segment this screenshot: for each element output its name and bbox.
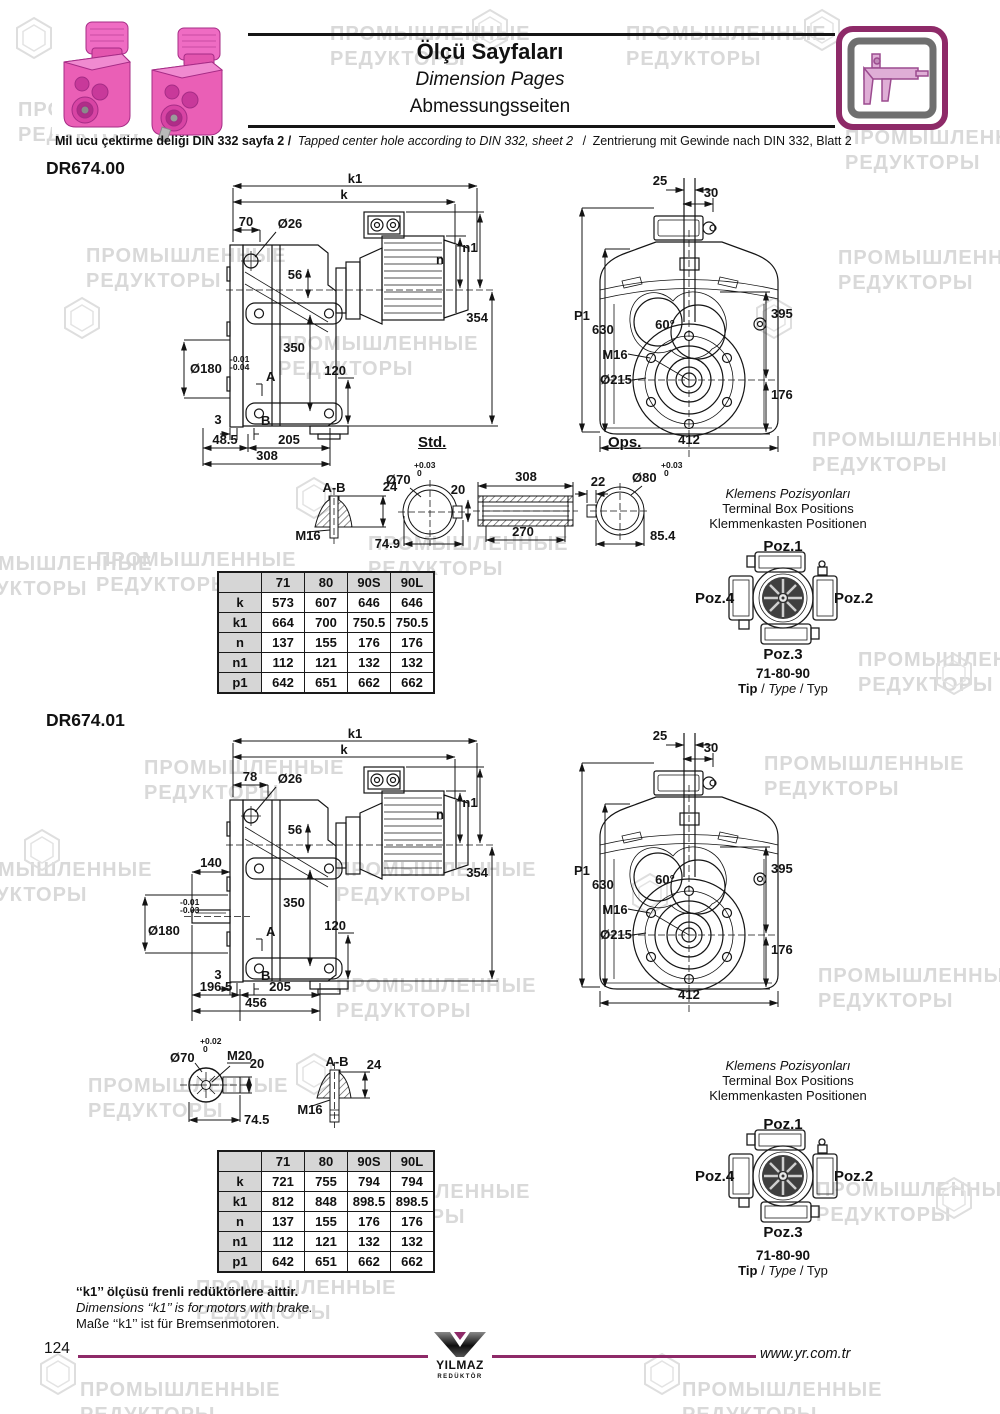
table-header-row: 718090S90L bbox=[218, 572, 434, 593]
footnote-german: Maße ‘‘k1’’ ist für Bremsenmotoren. bbox=[76, 1316, 313, 1332]
row-label: k bbox=[218, 1172, 262, 1192]
dim-label: Ø70 bbox=[170, 1050, 195, 1065]
din-note-turkish: Mil ucu çektirme deliği DIN 332 sayfa 2 … bbox=[55, 134, 291, 148]
column-header: 90L bbox=[391, 1151, 435, 1172]
watermark-text: ПРОМЫШЛЕННЫЕ РЕДУКТОРЫ bbox=[626, 22, 827, 72]
table-row: k573607646646 bbox=[218, 593, 434, 613]
column-header: 71 bbox=[262, 572, 305, 593]
value-cell: 646 bbox=[348, 593, 391, 613]
value-cell: 642 bbox=[262, 673, 305, 694]
shaft-details-dr674-00: A-B 24 M16 Ø70 +0.03 0 20 74.9 308 270 2… bbox=[290, 460, 680, 560]
value-cell: 176 bbox=[391, 1212, 435, 1232]
watermark-text: ПРОМЫШЛЕННЫЕ РЕДУКТОРЫ bbox=[845, 126, 1000, 176]
footer-rule-right bbox=[492, 1355, 756, 1358]
din-note-german: Zentrierung mit Gewinde nach DIN 332, Bl… bbox=[593, 134, 852, 148]
dim-label: M20 bbox=[227, 1048, 252, 1063]
value-cell: 176 bbox=[391, 633, 435, 653]
dim-label: 22 bbox=[591, 474, 605, 489]
table-row: n1112121132132 bbox=[218, 1232, 434, 1252]
dim-label: 24 bbox=[367, 1057, 382, 1072]
row-label: n1 bbox=[218, 1232, 262, 1252]
column-header: 90S bbox=[348, 572, 391, 593]
dim-label: 395 bbox=[771, 861, 793, 876]
dimension-table-dr674-01: 718090S90Lk721755794794k1812848898.5898.… bbox=[217, 1150, 435, 1273]
gearmotor-photo-2 bbox=[138, 24, 248, 142]
dim-label: n bbox=[436, 252, 444, 267]
detail-label: A-B bbox=[325, 1054, 348, 1069]
dim-label: k1 bbox=[348, 171, 362, 186]
dim-label: 120 bbox=[324, 918, 346, 933]
dimension-lines bbox=[184, 186, 498, 466]
detail-labels: A-B 24 M16 Ø70 +0.03 0 20 74.9 308 270 2… bbox=[295, 460, 682, 551]
value-cell: 112 bbox=[262, 653, 305, 673]
type-separator: / bbox=[800, 681, 807, 696]
motor-sizes-label: 71-80-90 bbox=[723, 666, 843, 681]
tolerance-label: -0.04 bbox=[230, 362, 250, 372]
dim-label: Ø26 bbox=[278, 216, 303, 231]
tolerance-label: -0.03 bbox=[180, 905, 200, 915]
column-header: 80 bbox=[305, 1151, 348, 1172]
terminal-title-german: Klemmenkasten Positionen bbox=[693, 1088, 883, 1103]
value-cell: 750.5 bbox=[348, 613, 391, 633]
hexagon-icon bbox=[932, 652, 976, 701]
dim-label: 20 bbox=[451, 482, 465, 497]
page-title: Ölçü Sayfaları Dimension Pages Abmessung… bbox=[330, 38, 650, 120]
value-cell: 176 bbox=[348, 1212, 391, 1232]
title-turkish: Ölçü Sayfaları bbox=[330, 38, 650, 66]
table-row: k1812848898.5898.5 bbox=[218, 1192, 434, 1212]
row-label: k1 bbox=[218, 613, 262, 633]
dim-label: M16 bbox=[297, 1102, 322, 1117]
hexagon-icon bbox=[36, 1352, 80, 1401]
dim-label: Ø180 bbox=[148, 923, 180, 938]
dim-label: M16 bbox=[602, 347, 627, 362]
value-cell: 662 bbox=[348, 673, 391, 694]
dim-label: k bbox=[340, 187, 348, 202]
value-cell: 132 bbox=[391, 1232, 435, 1252]
dim-label: 25 bbox=[653, 728, 667, 743]
dim-label: 78 bbox=[243, 769, 257, 784]
din-note: Mil ucu çektirme deliği DIN 332 sayfa 2 … bbox=[55, 134, 852, 148]
watermark-text: ПРОМЫШЛЕННЫЕ РЕДУКТОРЫ bbox=[80, 1378, 281, 1414]
row-label: n bbox=[218, 633, 262, 653]
dim-label: 270 bbox=[512, 524, 534, 539]
value-cell: 651 bbox=[305, 673, 348, 694]
dim-label: 56 bbox=[288, 822, 302, 837]
dim-label: 20 bbox=[250, 1056, 264, 1071]
hexagon-icon bbox=[12, 16, 56, 65]
value-cell: 898.5 bbox=[348, 1192, 391, 1212]
dim-label: 120 bbox=[324, 363, 346, 378]
value-cell: 755 bbox=[305, 1172, 348, 1192]
hexagon-icon bbox=[932, 1176, 976, 1225]
dim-label: 3 bbox=[214, 412, 221, 427]
value-cell: 750.5 bbox=[391, 613, 435, 633]
dim-label: 74.9 bbox=[375, 536, 400, 551]
side-view-drawing-dr674-00: k1 k 70 Ø26 56 n1 n 354 350 Ø180 -0.01 -… bbox=[140, 172, 510, 472]
value-cell: 132 bbox=[391, 653, 435, 673]
value-cell: 848 bbox=[305, 1192, 348, 1212]
watermark-text: ПРОМЫШЛЕННЫЕ РЕДУКТОРЫ bbox=[812, 428, 1000, 478]
dim-label: k bbox=[340, 742, 348, 757]
table-header-row: 718090S90L bbox=[218, 1151, 434, 1172]
dimension-labels: k1 k 78 Ø26 56 n1 n 354 350 A B 120 3 bbox=[214, 726, 488, 983]
value-cell: 662 bbox=[391, 1252, 435, 1273]
value-cell: 132 bbox=[348, 1232, 391, 1252]
terminal-box-positions-dr674-01: Klemens Pozisyonları Terminal Box Positi… bbox=[693, 1058, 893, 1273]
dim-label: 456 bbox=[245, 995, 267, 1010]
watermark-text: ПРОМЫШЛЕННЫЕ РЕДУКТОРЫ bbox=[682, 1378, 883, 1414]
detail-geometry bbox=[307, 480, 650, 546]
hexagon-icon bbox=[60, 296, 104, 345]
section-marker-a: A bbox=[266, 924, 276, 939]
dim-label: M16 bbox=[295, 528, 320, 543]
dim-label: Ø215 bbox=[600, 927, 632, 942]
dim-label: 70 bbox=[239, 214, 253, 229]
dim-label: Ø70 bbox=[386, 472, 411, 487]
dim-label: 354 bbox=[466, 310, 488, 325]
dim-label: n bbox=[436, 807, 444, 822]
dim-label: 85.4 bbox=[650, 528, 676, 543]
model-heading-dr674-00: DR674.00 bbox=[46, 158, 125, 179]
type-label-german: Typ bbox=[807, 1263, 828, 1278]
type-label-english: Type bbox=[768, 681, 796, 696]
value-cell: 721 bbox=[262, 1172, 305, 1192]
type-label: Tip / Type / Typ bbox=[708, 1263, 858, 1278]
column-header: 90S bbox=[348, 1151, 391, 1172]
poz3-label: Poz.3 bbox=[733, 646, 833, 663]
row-label: k1 bbox=[218, 1192, 262, 1212]
value-cell: 137 bbox=[262, 633, 305, 653]
footnote-turkish: ‘‘k1’’ ölçüsü frenli redüktörlere aittir… bbox=[76, 1284, 313, 1300]
hexagon-icon bbox=[20, 828, 64, 877]
table-row: n137155176176 bbox=[218, 1212, 434, 1232]
dim-label: 176 bbox=[771, 387, 793, 402]
dim-label: M16 bbox=[602, 902, 627, 917]
dim-label: n1 bbox=[462, 240, 477, 255]
row-label: p1 bbox=[218, 673, 262, 694]
dim-label: k1 bbox=[348, 726, 362, 741]
column-header: 90L bbox=[391, 572, 435, 593]
dim-label: 350 bbox=[283, 895, 305, 910]
dim-label: 30 bbox=[704, 185, 718, 200]
value-cell: 651 bbox=[305, 1252, 348, 1273]
value-cell: 794 bbox=[391, 1172, 435, 1192]
table-row: k1664700750.5750.5 bbox=[218, 613, 434, 633]
value-cell: 898.5 bbox=[391, 1192, 435, 1212]
value-cell: 794 bbox=[348, 1172, 391, 1192]
table-row: p1642651662662 bbox=[218, 1252, 434, 1273]
dim-label: 60° bbox=[655, 872, 675, 887]
dim-label: P1 bbox=[574, 308, 590, 323]
dim-label: Ø80 bbox=[632, 470, 657, 485]
footer-rule-left bbox=[78, 1355, 428, 1358]
dim-label: 3 bbox=[214, 967, 221, 982]
column-header bbox=[218, 1151, 262, 1172]
terminal-title-english: Terminal Box Positions bbox=[693, 501, 883, 516]
dim-label: Ø180 bbox=[190, 361, 222, 376]
dim-label: 412 bbox=[678, 987, 700, 1002]
value-cell: 137 bbox=[262, 1212, 305, 1232]
tolerance-label: 0 bbox=[417, 468, 422, 478]
value-cell: 664 bbox=[262, 613, 305, 633]
dim-label: 48.5 bbox=[212, 432, 237, 447]
dim-label: P1 bbox=[574, 863, 590, 878]
value-cell: 812 bbox=[262, 1192, 305, 1212]
table-row: n137155176176 bbox=[218, 633, 434, 653]
motor-sizes-label: 71-80-90 bbox=[723, 1248, 843, 1263]
dim-label: 176 bbox=[771, 942, 793, 957]
section-marker-a: A bbox=[266, 369, 276, 384]
row-label: k bbox=[218, 593, 262, 613]
dim-label: 56 bbox=[288, 267, 302, 282]
type-separator: / bbox=[800, 1263, 807, 1278]
page-number: 124 bbox=[44, 1340, 70, 1358]
column-header: 80 bbox=[305, 572, 348, 593]
website-url: www.yr.com.tr bbox=[760, 1346, 851, 1362]
hexagon-icon bbox=[640, 1352, 684, 1401]
dim-label: 308 bbox=[256, 448, 278, 463]
ops-label: Ops. bbox=[608, 434, 641, 451]
terminal-title-turkish: Klemens Pozisyonları bbox=[693, 486, 883, 501]
side-view-drawing-dr674-01: 140 Ø180 -0.01 -0.03 196.5 205 456 bbox=[140, 727, 510, 1027]
terminal-box-positions-dr674-00: Klemens Pozisyonları Terminal Box Positi… bbox=[693, 486, 893, 701]
value-cell: 121 bbox=[305, 1232, 348, 1252]
tolerance-label: 0 bbox=[203, 1044, 208, 1054]
din-note-separator: / bbox=[583, 134, 586, 148]
type-label-turkish: Tip bbox=[738, 681, 757, 696]
table-row: p1642651662662 bbox=[218, 673, 434, 694]
title-english: Dimension Pages bbox=[330, 66, 650, 93]
value-cell: 662 bbox=[348, 1252, 391, 1273]
column-header bbox=[218, 572, 262, 593]
gearbox-front bbox=[600, 178, 778, 436]
caliper-icon bbox=[836, 26, 948, 130]
dim-label: 630 bbox=[592, 877, 614, 892]
detail-geometry bbox=[180, 1062, 370, 1128]
detail-label: A-B bbox=[322, 480, 345, 495]
value-cell: 155 bbox=[305, 1212, 348, 1232]
dim-label: Ø215 bbox=[600, 372, 632, 387]
dim-label: 395 bbox=[771, 306, 793, 321]
gearbox-front bbox=[600, 733, 778, 991]
footnote-english: Dimensions ‘‘k1’’ is for motors with bra… bbox=[76, 1300, 313, 1316]
dim-label: 412 bbox=[678, 432, 700, 447]
dim-label: 140 bbox=[200, 855, 222, 870]
row-label: p1 bbox=[218, 1252, 262, 1273]
logo-subname: REDÜKTÖR bbox=[437, 1373, 482, 1380]
model-heading-dr674-01: DR674.01 bbox=[46, 710, 125, 731]
value-cell: 642 bbox=[262, 1252, 305, 1273]
dim-label: 630 bbox=[592, 322, 614, 337]
front-view-drawing-dr674-01: 25 30 P1 630 60° M16 Ø215 395 176 412 bbox=[570, 727, 830, 1027]
logo-triangle bbox=[454, 1332, 466, 1340]
value-cell: 607 bbox=[305, 593, 348, 613]
k1-footnote: ‘‘k1’’ ölçüsü frenli redüktörlere aittir… bbox=[76, 1284, 313, 1332]
type-label-german: Typ bbox=[807, 681, 828, 696]
type-label: Tip / Type / Typ bbox=[708, 681, 858, 696]
dim-label: 308 bbox=[515, 469, 537, 484]
value-cell: 700 bbox=[305, 613, 348, 633]
value-cell: 573 bbox=[262, 593, 305, 613]
din-note-english: Tapped center hole according to DIN 332,… bbox=[298, 134, 573, 148]
front-view-drawing-dr674-00: 25 30 P1 630 60° M16 Ø215 395 176 412 bbox=[570, 172, 830, 472]
dim-label: Ø26 bbox=[278, 771, 303, 786]
dim-label: 74.5 bbox=[244, 1112, 269, 1127]
dim-label: 354 bbox=[466, 865, 488, 880]
section-marker-b: B bbox=[261, 968, 270, 983]
dim-label: 25 bbox=[653, 173, 667, 188]
dimension-table-dr674-00: 718090S90Lk573607646646k1664700750.5750.… bbox=[217, 571, 435, 694]
dim-label: n1 bbox=[462, 795, 477, 810]
table-row: n1112121132132 bbox=[218, 653, 434, 673]
dim-label: 30 bbox=[704, 740, 718, 755]
yilmaz-reduktor-logo: YILMAZ REDÜKTÖR bbox=[430, 1330, 490, 1384]
value-cell: 662 bbox=[391, 673, 435, 694]
table-row: k721755794794 bbox=[218, 1172, 434, 1192]
title-german: Abmessungsseiten bbox=[330, 93, 650, 120]
terminal-title-turkish: Klemens Pozisyonları bbox=[693, 1058, 883, 1073]
catalog-page: ПРОМЫШЛЕННЫЕ РЕДУКТОРЫ ПРОМЫШЛЕННЫЕ РЕДУ… bbox=[0, 0, 1000, 1414]
terminal-position-diagram bbox=[718, 548, 848, 648]
poz3-label: Poz.3 bbox=[733, 1224, 833, 1241]
value-cell: 132 bbox=[348, 653, 391, 673]
type-label-turkish: Tip bbox=[738, 1263, 757, 1278]
logo-name: YILMAZ bbox=[436, 1358, 484, 1372]
dim-label: 60° bbox=[655, 317, 675, 332]
row-label: n1 bbox=[218, 653, 262, 673]
terminal-title-english: Terminal Box Positions bbox=[693, 1073, 883, 1088]
value-cell: 155 bbox=[305, 633, 348, 653]
value-cell: 646 bbox=[391, 593, 435, 613]
shaft-details-dr674-01: Ø70 +0.02 0 M20 20 74.5 A-B 24 M16 bbox=[150, 1030, 430, 1140]
watermark-text: ПРОМЫШЛЕННЫЕ РЕДУКТОРЫ bbox=[818, 964, 1000, 1014]
value-cell: 112 bbox=[262, 1232, 305, 1252]
section-marker-b: B bbox=[261, 413, 270, 428]
dim-label: 205 bbox=[278, 432, 300, 447]
tolerance-label: 0 bbox=[664, 468, 669, 478]
terminal-title-german: Klemmenkasten Positionen bbox=[693, 516, 883, 531]
column-header: 71 bbox=[262, 1151, 305, 1172]
type-label-english: Type bbox=[768, 1263, 796, 1278]
dim-label: 350 bbox=[283, 340, 305, 355]
terminal-position-diagram bbox=[718, 1126, 848, 1226]
value-cell: 121 bbox=[305, 653, 348, 673]
std-label: Std. bbox=[418, 434, 446, 451]
watermark-text: ПРОМЫШЛЕННЫЕ РЕДУКТОРЫ bbox=[838, 246, 1000, 296]
detail-labels: Ø70 +0.02 0 M20 20 74.5 A-B 24 M16 bbox=[170, 1036, 382, 1127]
value-cell: 176 bbox=[348, 633, 391, 653]
row-label: n bbox=[218, 1212, 262, 1232]
